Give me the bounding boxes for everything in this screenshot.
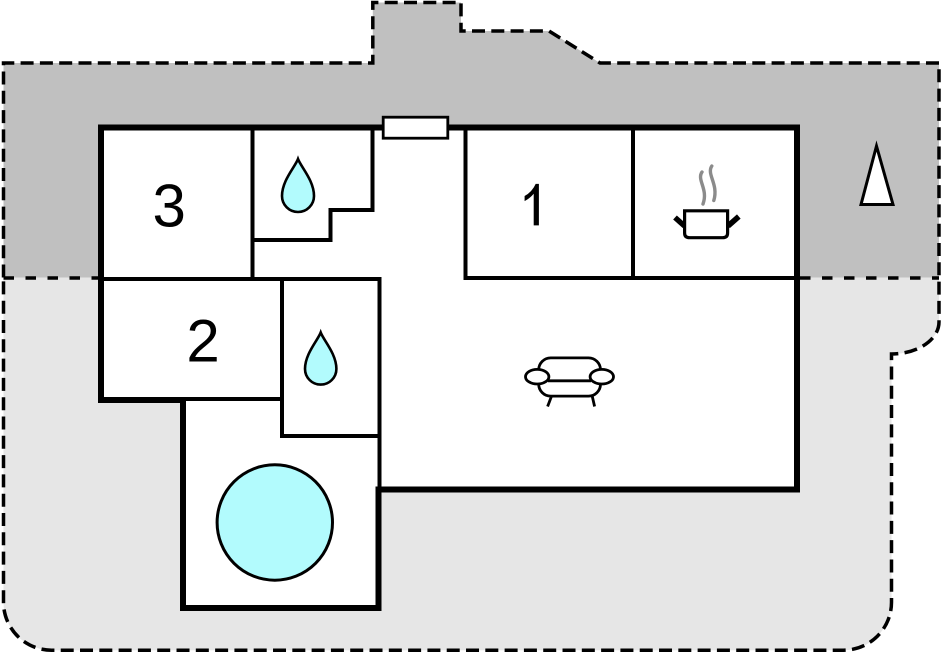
svg-text:2: 2 bbox=[186, 308, 219, 375]
svg-text:3: 3 bbox=[153, 172, 186, 239]
